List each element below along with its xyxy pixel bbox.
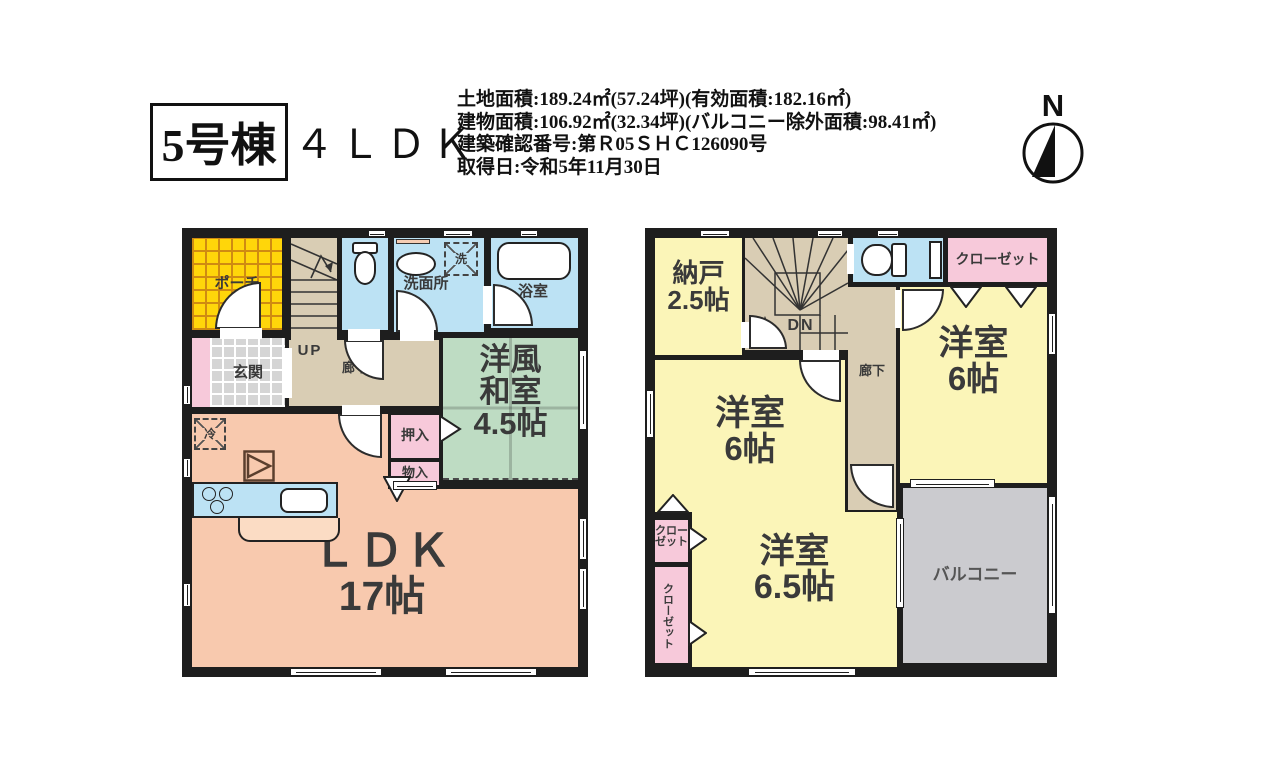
yoshitsu-right-door-opening	[895, 290, 901, 328]
bath-door-opening	[483, 286, 492, 324]
bathtub-icon	[497, 242, 571, 280]
closet-door-marker	[1005, 286, 1037, 308]
tv-icon	[243, 450, 275, 482]
washroom-shelf	[396, 239, 430, 244]
corridor-2f-label: 廊下	[847, 364, 897, 378]
window	[877, 230, 899, 237]
toilet-bowl-icon	[354, 251, 376, 285]
stove-burner-icon	[202, 487, 216, 501]
balcony-sliding-door	[896, 518, 904, 608]
toilet-tank-icon	[891, 243, 907, 277]
entrance-hall-opening	[284, 348, 292, 398]
up-label: UP	[290, 343, 330, 359]
closet-door-marker	[688, 526, 707, 552]
land-area-line: 土地面積:189.24㎡(57.24坪)(有効面積:182.16㎡)	[457, 89, 1017, 112]
closet-tall-label: クローゼット	[661, 576, 672, 656]
closet-door-marker	[688, 620, 707, 646]
window	[579, 350, 587, 430]
window	[1048, 313, 1056, 355]
floor-plan-1f: 洗 冷	[182, 228, 588, 677]
closet-door-marker	[657, 494, 689, 513]
yoshitsu-right-label: 洋室 6帖	[900, 326, 1047, 397]
layout-type-label: ４ＬＤＫ	[294, 112, 478, 170]
acquisition-date-line: 取得日:令和5年11月30日	[457, 157, 1017, 180]
nando-label: 納戸 2.5帖	[655, 260, 742, 314]
window	[646, 390, 654, 438]
kitchen-counter-front	[238, 518, 340, 542]
window	[443, 230, 473, 237]
nando-door-opening	[741, 322, 749, 348]
unit-number-box: 5号棟	[150, 103, 288, 181]
compass-icon	[1022, 120, 1084, 184]
yoshitsu-left-door-opening	[803, 350, 839, 360]
washroom-door-opening	[400, 330, 434, 341]
stove-burner-icon	[210, 500, 224, 514]
balcony-label: バルコニー	[903, 566, 1047, 584]
entrance-label: 玄関	[220, 365, 276, 381]
ldk-door-opening	[342, 405, 380, 415]
toilet-door-opening	[348, 329, 380, 341]
window	[817, 230, 843, 237]
unit-number-label: 5号棟	[162, 109, 277, 175]
stairs-1f-treads	[291, 238, 337, 340]
confirmation-number-line: 建築確認番号:第Ｒ05ＳＨＣ126090号	[457, 134, 1017, 157]
balcony-railing	[1048, 496, 1056, 614]
toilet-bowl-icon	[861, 244, 893, 276]
window	[183, 458, 191, 478]
shoe-cabinet	[192, 338, 210, 407]
yoshitsu-65-label: 洋室 6.5帖	[692, 534, 897, 606]
window	[183, 583, 191, 607]
window	[290, 668, 382, 676]
toilet-counter	[929, 241, 942, 279]
window	[579, 568, 587, 610]
fridge-label: 冷	[203, 428, 217, 440]
washitsu-door-marker	[439, 415, 462, 443]
window	[579, 518, 587, 560]
yoshitsu-left-label: 洋室 6帖	[655, 396, 845, 467]
monoire-sliding-door	[393, 481, 437, 490]
window	[445, 668, 537, 676]
closet-small-label: クロー ゼット	[655, 526, 688, 549]
window	[700, 230, 730, 237]
window	[748, 668, 856, 676]
floorplan-flyer: 5号棟 ４ＬＤＫ 土地面積:189.24㎡(57.24坪)(有効面積:182.1…	[0, 0, 1270, 770]
oshiire-label: 押入	[391, 428, 439, 443]
compass-n-label: N	[1030, 88, 1076, 124]
window	[520, 230, 538, 237]
property-info: 土地面積:189.24㎡(57.24坪)(有効面積:182.16㎡) 建物面積:…	[457, 89, 1017, 179]
toilet-2f-door-opening	[847, 244, 854, 274]
closet-top-right-label: クローゼット	[948, 252, 1047, 267]
balcony-sliding-door	[910, 479, 995, 488]
washitsu-label: 洋風 和室 4.5帖	[443, 344, 578, 441]
window	[368, 230, 386, 237]
refrigerator-icon: 冷	[194, 418, 226, 450]
floor-plan-2f: 納戸 2.5帖 DN 廊下 クローゼット 洋室 6帖 洋室 6帖 クロー ゼット…	[645, 228, 1057, 677]
building-area-line: 建物面積:106.92㎡(32.34坪)(バルコニー除外面積:98.41㎡)	[457, 112, 1017, 135]
washing-machine-icon: 洗	[444, 242, 478, 276]
kitchen-sink-icon	[280, 488, 328, 513]
closet-door-marker	[950, 286, 982, 308]
window	[183, 385, 191, 405]
sink-icon	[396, 252, 436, 276]
front-door-opening	[220, 328, 262, 339]
washer-label: 洗	[454, 253, 468, 265]
stove-burner-icon	[219, 487, 233, 501]
